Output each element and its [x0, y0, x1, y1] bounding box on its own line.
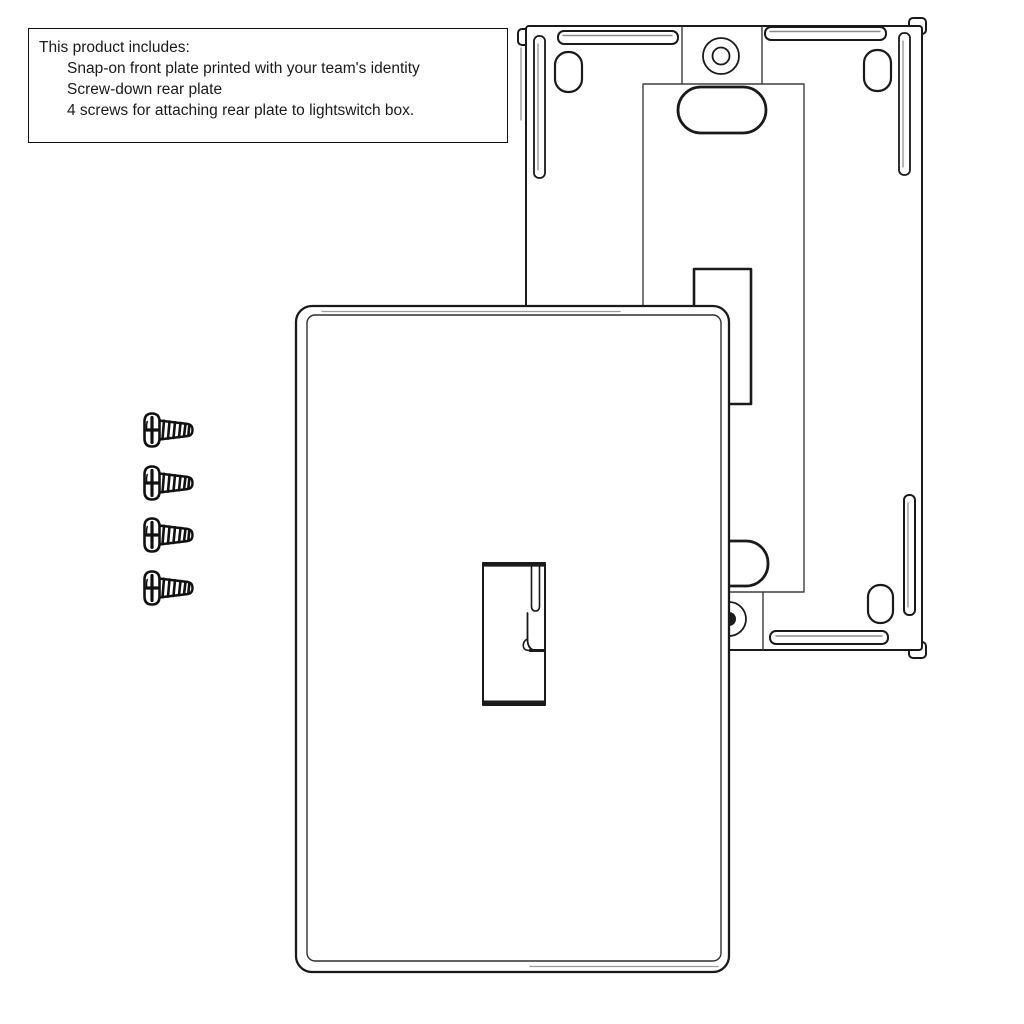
info-box-item: 4 screws for attaching rear plate to lig… — [67, 100, 497, 121]
screw-2 — [145, 467, 193, 500]
product-info-box: This product includes: Snap-on front pla… — [28, 28, 508, 143]
front-plate — [296, 306, 729, 972]
info-box-item: Snap-on front plate printed with your te… — [67, 58, 497, 79]
product-illustration-page: This product includes: Snap-on front pla… — [0, 0, 1024, 1024]
product-diagram — [0, 0, 1024, 1024]
info-box-item: Screw-down rear plate — [67, 79, 497, 100]
screw-set — [145, 414, 193, 605]
front-plate-outline — [296, 306, 729, 972]
screw-1 — [145, 414, 193, 447]
screw-4 — [145, 572, 193, 605]
info-box-title: This product includes: — [39, 37, 497, 58]
screw-3 — [145, 519, 193, 552]
